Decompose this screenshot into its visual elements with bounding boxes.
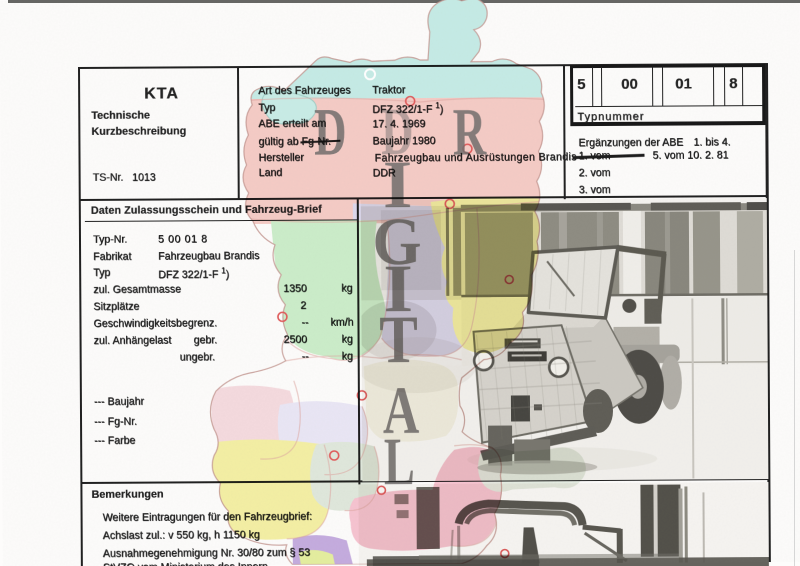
- svg-text:D: D: [314, 95, 347, 170]
- svg-text:L: L: [384, 423, 415, 499]
- svg-text:T: T: [379, 302, 418, 378]
- svg-text:R: R: [452, 94, 487, 170]
